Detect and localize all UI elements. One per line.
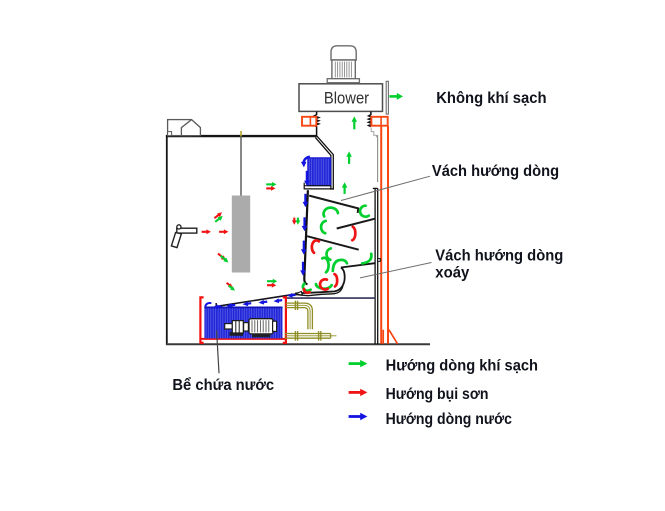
svg-text:Hướng bụi sơn: Hướng bụi sơn [386,386,489,403]
svg-text:Bể chứa nước: Bể chứa nước [172,376,274,394]
svg-text:Không khí sạch: Không khí sạch [436,90,546,107]
svg-text:xoáy: xoáy [435,264,469,281]
svg-text:Vách hướng dòng: Vách hướng dòng [435,247,563,264]
svg-text:Vách hướng dòng: Vách hướng dòng [432,163,559,180]
svg-text:Hướng dòng nước: Hướng dòng nước [386,411,512,428]
svg-text:Blower: Blower [324,88,369,107]
svg-text:Hướng dòng khí sạch: Hướng dòng khí sạch [386,357,538,374]
